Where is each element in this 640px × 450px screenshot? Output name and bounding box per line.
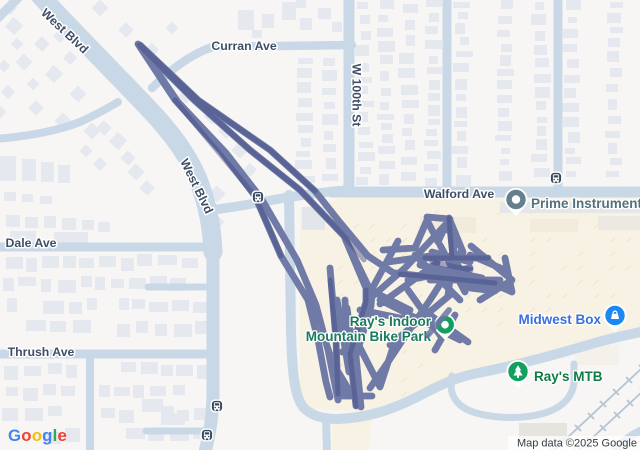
svg-text:Dale Ave: Dale Ave: [5, 236, 56, 250]
svg-text:Walford Ave: Walford Ave: [424, 187, 495, 201]
svg-text:Google: Google: [8, 426, 67, 445]
svg-text:Curran Ave: Curran Ave: [211, 39, 277, 53]
svg-text:Midwest Box: Midwest Box: [518, 312, 601, 327]
svg-text:Mountain Bike Park: Mountain Bike Park: [306, 329, 432, 344]
svg-text:Ray's Indoor: Ray's Indoor: [350, 314, 432, 329]
svg-text:Thrush Ave: Thrush Ave: [8, 345, 75, 359]
svg-text:Ray's MTB: Ray's MTB: [534, 369, 603, 384]
svg-text:Prime Instrument: Prime Instrument: [531, 196, 640, 211]
svg-text:Map data ©2025 Google: Map data ©2025 Google: [517, 438, 637, 450]
svg-text:W 100th St: W 100th St: [350, 64, 364, 127]
